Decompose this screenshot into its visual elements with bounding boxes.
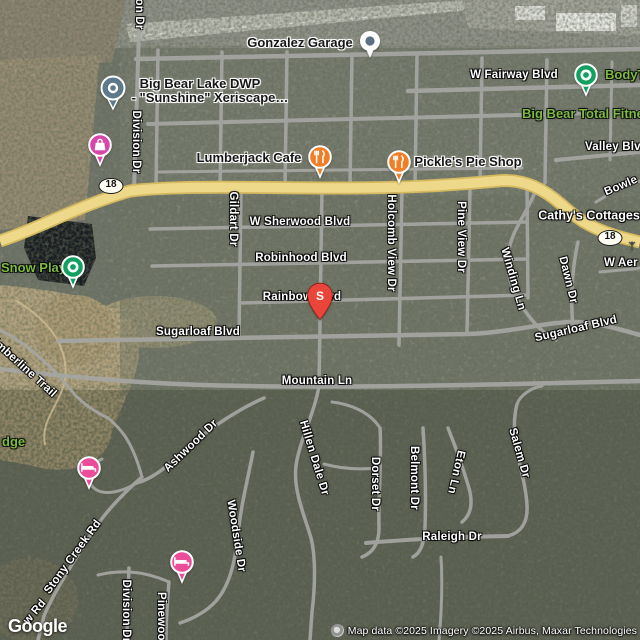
route-18-shield-east: 18 bbox=[598, 230, 623, 246]
road-label-w-aeroplane: W Aer bbox=[604, 257, 638, 269]
poi-label-big-bear-lake-dwp-line2[interactable]: - "Sunshine" Xeriscape… bbox=[132, 91, 289, 105]
poi-label-snow-play[interactable]: Snow Play bbox=[1, 261, 66, 275]
poi-label-lumberjack-cafe[interactable]: Lumberjack Cafe bbox=[197, 151, 302, 165]
lumberjack-cafe-pin[interactable] bbox=[306, 144, 334, 180]
road-label-w-sherwood-blvd: W Sherwood Blvd bbox=[250, 216, 351, 228]
road-label-w-fairway-blvd: W Fairway Blvd bbox=[470, 69, 558, 81]
poi-label-bodyt[interactable]: BodyT bbox=[605, 68, 640, 82]
poi-label-lodge[interactable]: dge bbox=[2, 435, 25, 449]
svg-text:S: S bbox=[316, 289, 324, 303]
bodyt-poi-pin[interactable] bbox=[572, 62, 600, 98]
antenna-poi-icon[interactable] bbox=[627, 240, 637, 252]
road-label-holcomb-view-dr: Holcomb View Dr bbox=[385, 194, 397, 291]
road-label-division-dr: Division Dr bbox=[130, 111, 142, 174]
map-markers-layer: S bbox=[0, 0, 640, 640]
road-label-valley-blvd: Valley Blvd bbox=[585, 141, 640, 153]
google-logo[interactable]: Google bbox=[8, 616, 67, 637]
road-label-hillen-dale-dr: Hillen Dale Dr bbox=[297, 419, 331, 497]
search-result-pin[interactable]: S bbox=[306, 282, 334, 322]
road-label-division-dr-south: Division Dr bbox=[120, 580, 132, 640]
shopping-poi-pin[interactable] bbox=[86, 132, 114, 168]
poi-label-big-bear-total-fitness[interactable]: Big Bear Total Fitne bbox=[522, 107, 640, 121]
road-label-dawn-dr: Dawn Dr bbox=[556, 255, 579, 305]
poi-label-gonzalez-garage[interactable]: Gonzalez Garage bbox=[247, 36, 352, 50]
road-label-division-dr-top: on Dr bbox=[133, 0, 145, 30]
satellite-map-canvas[interactable]: on DrGonzalez GarageW Fairway BlvdBodyTB… bbox=[0, 0, 640, 640]
road-label-sugarloaf-blvd-east: Sugarloaf Blvd bbox=[534, 314, 619, 345]
road-label-woodside-dr: Woodside Dr bbox=[224, 499, 247, 573]
poi-label-big-bear-lake-dwp-line1[interactable]: Big Bear Lake DWP bbox=[140, 77, 261, 91]
pickles-pie-shop-pin[interactable] bbox=[385, 149, 413, 185]
route-18-shield-west: 18 bbox=[99, 178, 124, 194]
hotel-pin-west[interactable] bbox=[75, 455, 103, 491]
gonzalez-garage-marker[interactable] bbox=[358, 30, 382, 60]
snow-play-poi-pin[interactable] bbox=[59, 254, 87, 290]
hotel-pin-south[interactable] bbox=[168, 549, 196, 585]
road-label-pine-view-dr: Pine View Dr bbox=[455, 201, 467, 273]
road-label-robinhood-blvd: Robinhood Blvd bbox=[255, 252, 347, 264]
big-bear-lake-dwp-marker[interactable] bbox=[98, 74, 128, 112]
road-label-raleigh-dr: Raleigh Dr bbox=[422, 531, 482, 543]
road-label-pinewood: Pinewood bbox=[155, 592, 167, 640]
road-label-mountain-ln: Mountain Ln bbox=[282, 375, 353, 387]
map-attribution: Map data ©2025 Imagery ©2025 Airbus, Max… bbox=[331, 624, 637, 637]
road-label-bowle: Bowle bbox=[603, 174, 640, 199]
road-label-timberline-trail: Timberline Trail bbox=[0, 332, 59, 400]
attribution-icon bbox=[331, 624, 344, 637]
attribution-text: Map data ©2025 Imagery ©2025 Airbus, Max… bbox=[348, 625, 637, 637]
road-label-dorset-dr: Dorset Dr bbox=[369, 457, 381, 511]
road-label-belmont-dr: Belmont Dr bbox=[408, 446, 420, 510]
road-label-winding-ln: Winding Ln bbox=[498, 246, 527, 311]
road-label-ashwood-dr: Ashwood Dr bbox=[162, 417, 221, 474]
poi-label-pickles-pie-shop[interactable]: Pickle's Pie Shop bbox=[414, 155, 521, 169]
road-label-salem-dr: Salem Dr bbox=[506, 427, 532, 480]
road-label-gildart-dr: Gildart Dr bbox=[227, 191, 239, 246]
road-label-stony-creek-rd: Stony Creek Rd bbox=[42, 518, 104, 597]
road-label-eton-ln: Eton Ln bbox=[445, 449, 467, 495]
poi-label-cathys-cottages[interactable]: Cathy's Cottages bbox=[538, 209, 640, 222]
road-label-sugarloaf-blvd-west: Sugarloaf Blvd bbox=[156, 326, 240, 338]
